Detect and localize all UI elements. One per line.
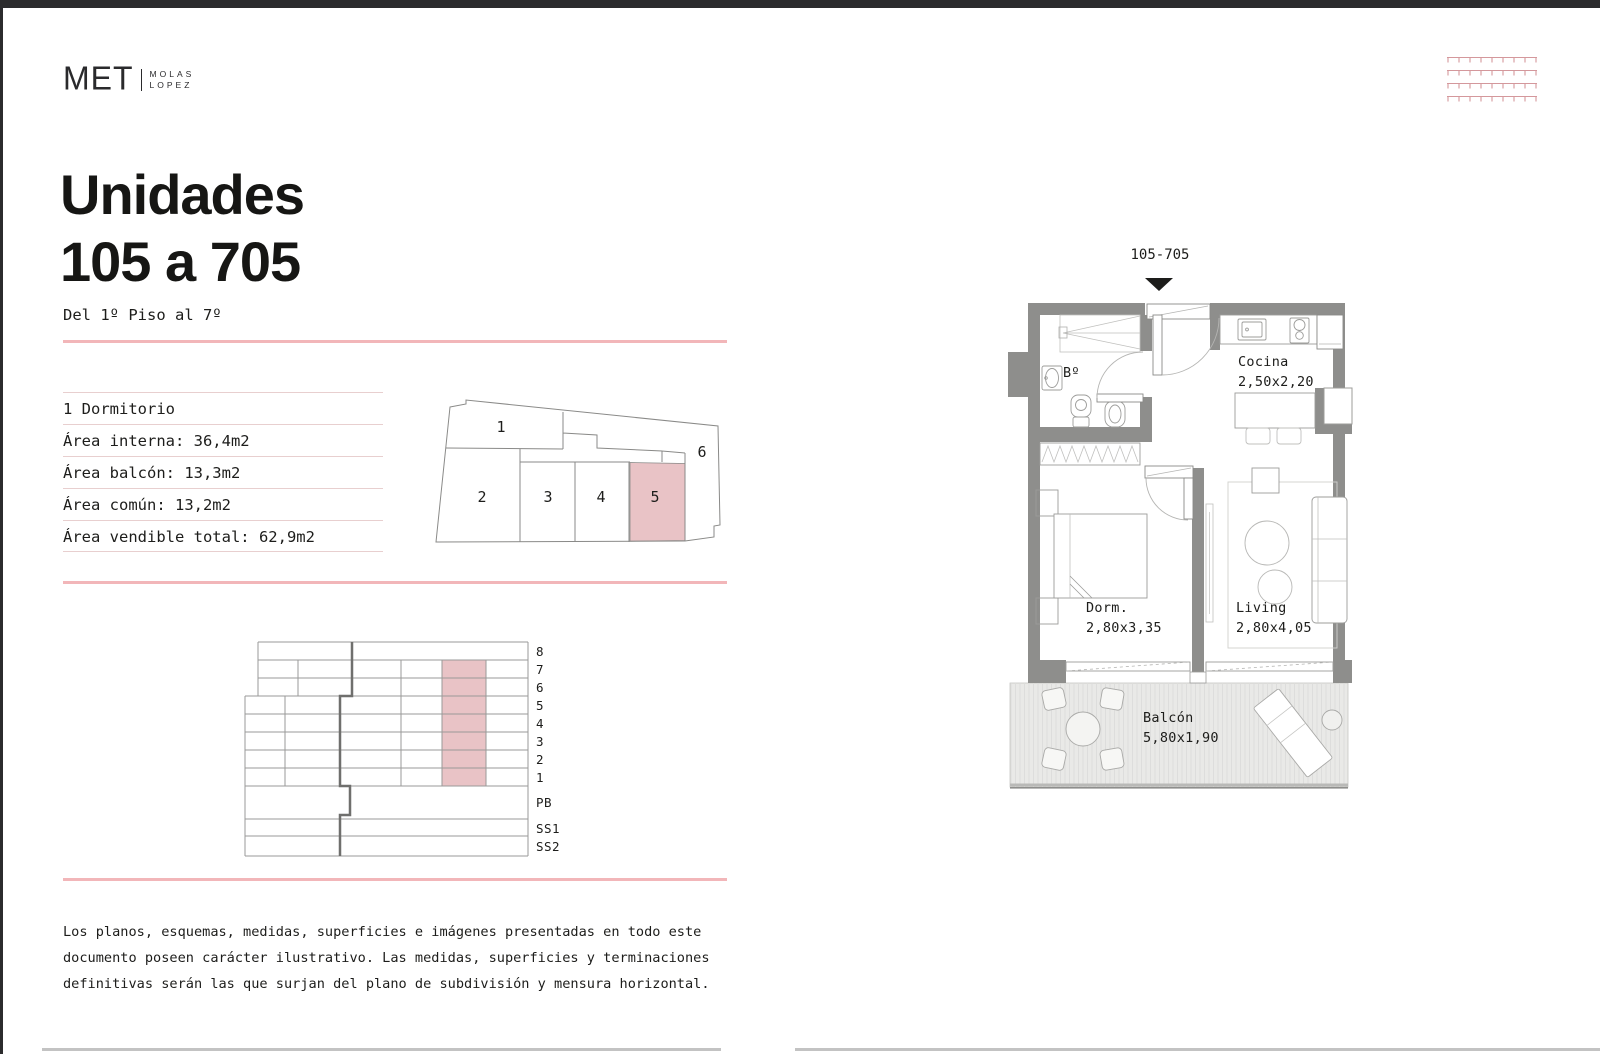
bathroom: Bº	[1042, 315, 1143, 427]
sofa-icon	[1312, 497, 1347, 623]
floor-label-7: 7	[536, 662, 544, 677]
disclaimer-text: Los planos, esquemas, medidas, superfici…	[63, 920, 710, 997]
chair-icon	[1277, 428, 1301, 444]
coffee-table-icon	[1245, 521, 1289, 565]
bedroom-door-icon	[1145, 466, 1193, 520]
floorplate-unit-4: 4	[596, 488, 605, 506]
balcony-label: Balcón	[1143, 710, 1194, 726]
balcony-chair-icon	[1099, 747, 1124, 771]
building-section-diagram: 8 7 6 5 4 3 2 1 PB SS1 SS2	[238, 630, 563, 860]
bedroom-label: Dorm.	[1086, 600, 1128, 616]
floor-label-ss1: SS1	[536, 821, 560, 836]
floor-label-pb: PB	[536, 795, 552, 810]
toilet-icon	[1071, 395, 1091, 427]
page-title-line2: 105 a 705	[60, 228, 304, 295]
logo-sub-line1: MOLAS	[150, 69, 195, 80]
balcony-chair-icon	[1041, 687, 1067, 711]
living-room: Living 2,80x4,05	[1206, 468, 1347, 648]
fridge-icon	[1317, 315, 1343, 349]
bedroom: Dorm. 2,80x3,35	[1036, 490, 1162, 636]
comb-pattern-decoration	[1447, 56, 1539, 104]
bottom-rule-left	[42, 1048, 721, 1051]
unit-range-label: 105-705	[1120, 247, 1200, 263]
spec-row-balcony-area: Área balcón: 13,3m2	[63, 456, 383, 488]
disclaimer-line1: Los planos, esquemas, medidas, superfici…	[63, 920, 710, 946]
bottom-rule-right	[795, 1048, 1600, 1051]
page-top-border	[0, 0, 1600, 8]
brochure-page: MET MOLAS LOPEZ Unidades 105 a 705 Del 1…	[0, 0, 1600, 1054]
balcony-chair-icon	[1099, 687, 1124, 711]
bedroom-size: 2,80x3,35	[1086, 620, 1162, 636]
chair-icon	[1246, 428, 1270, 444]
shower-icon	[1059, 315, 1140, 352]
floor-label-8: 8	[536, 644, 544, 659]
floorplate-unit-2: 2	[477, 488, 486, 506]
balcony-chair-icon	[1041, 747, 1067, 771]
bidet-icon	[1105, 401, 1125, 427]
entry-door-icon	[1147, 304, 1219, 375]
page-left-border	[0, 0, 3, 1054]
floorplate-diagram: 1 2 3 4 5 6	[415, 385, 725, 550]
bath-sink-icon	[1042, 366, 1062, 390]
floor-label-2: 2	[536, 752, 544, 767]
bathroom-door-icon	[1097, 352, 1143, 402]
dining-table-icon	[1235, 393, 1315, 428]
spec-row-internal-area: Área interna: 36,4m2	[63, 424, 383, 456]
balcony-size: 5,80x1,90	[1143, 730, 1219, 746]
balcony-railing	[1010, 784, 1348, 787]
kitchen-size: 2,50x2,20	[1238, 374, 1314, 390]
bed-icon	[1054, 514, 1147, 598]
page-title: Unidades 105 a 705	[60, 161, 304, 295]
divider-rule-3	[63, 878, 727, 881]
spec-row-common-area: Área común: 13,2m2	[63, 488, 383, 520]
planter-recess	[1324, 388, 1352, 424]
floorplate-unit-3: 3	[543, 488, 552, 506]
tv-unit-icon	[1252, 468, 1279, 493]
logo: MET MOLAS LOPEZ	[63, 60, 194, 96]
living-label: Living	[1236, 600, 1287, 616]
floorplate-unit-5: 5	[650, 488, 659, 506]
wardrobe-icon	[1040, 443, 1140, 465]
floor-label-4: 4	[536, 716, 544, 731]
specs-list: 1 Dormitorio Área interna: 36,4m2 Área b…	[63, 392, 383, 552]
balcony-table-icon	[1066, 712, 1100, 746]
bathroom-label: Bº	[1063, 365, 1080, 381]
spec-row-bedrooms: 1 Dormitorio	[63, 392, 383, 424]
disclaimer-line2: documento poseen carácter ilustrativo. L…	[63, 946, 710, 972]
floor-label-ss2: SS2	[536, 839, 560, 854]
page-subtitle: Del 1º Piso al 7º	[63, 306, 222, 324]
floor-label-3: 3	[536, 734, 544, 749]
coffee-table-icon	[1258, 570, 1292, 604]
floorplate-unit-1: 1	[496, 418, 505, 436]
floor-label-5: 5	[536, 698, 544, 713]
kitchen-label: Cocina	[1238, 354, 1289, 370]
floor-plan: Bº Dorm. 2,80x3,35	[1006, 292, 1354, 798]
window-pier	[1190, 672, 1206, 683]
down-arrow-icon	[1145, 278, 1173, 291]
logo-met: MET	[63, 59, 134, 96]
section-core-line	[340, 642, 352, 856]
logo-sub-line2: LOPEZ	[150, 80, 195, 91]
living-size: 2,80x4,05	[1236, 620, 1312, 636]
spec-row-total-area: Área vendible total: 62,9m2	[63, 520, 383, 552]
disclaimer-line3: definitivas serán las que surjan del pla…	[63, 972, 710, 998]
divider-rule-2	[63, 581, 727, 584]
floorplate-unit-6: 6	[697, 443, 706, 461]
section-highlight-column	[442, 660, 486, 786]
floor-label-1: 1	[536, 770, 544, 785]
logo-subtitle: MOLAS LOPEZ	[141, 69, 195, 91]
floor-label-6: 6	[536, 680, 544, 695]
divider-rule-1	[63, 340, 727, 343]
side-table-icon	[1322, 710, 1342, 730]
page-title-line1: Unidades	[60, 161, 304, 228]
